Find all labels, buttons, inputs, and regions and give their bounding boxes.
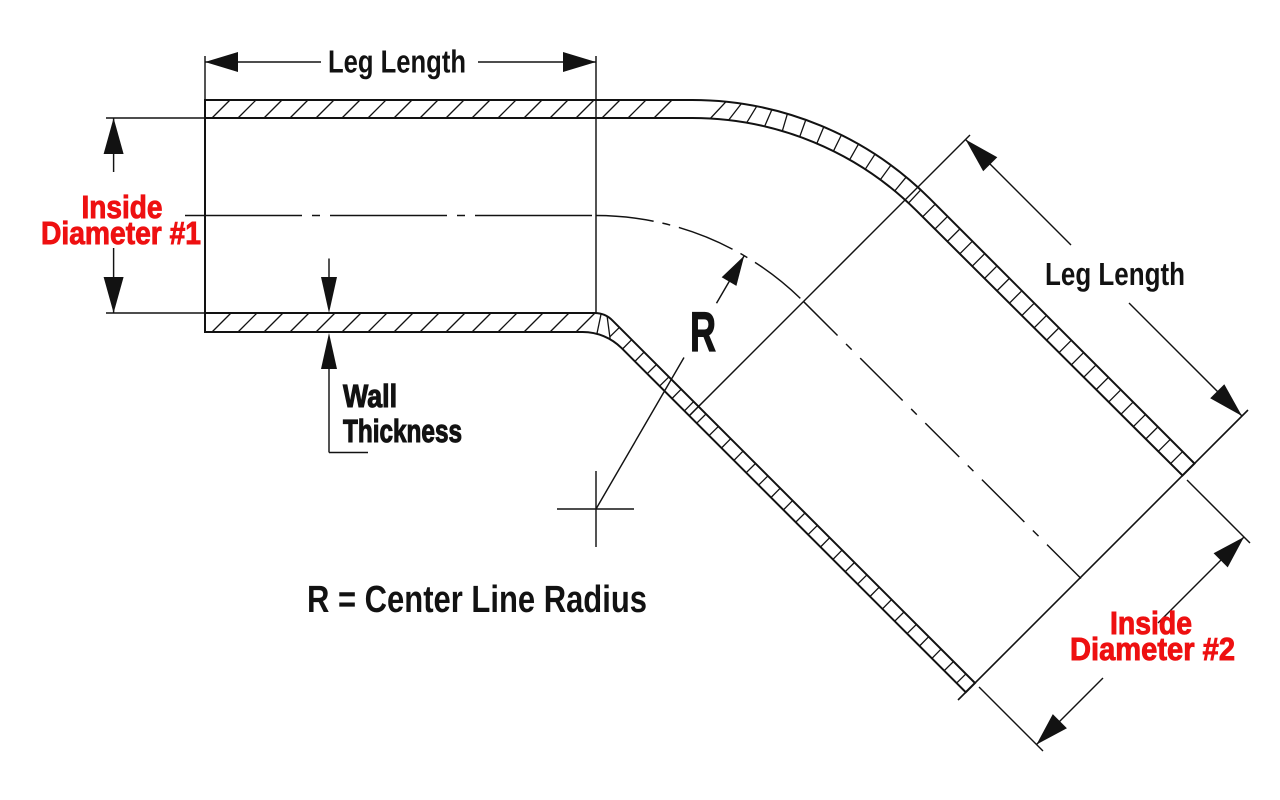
svg-text:Diameter #1: Diameter #1 [41,215,201,251]
svg-text:R: R [690,300,716,363]
svg-text:Wall: Wall [343,378,397,414]
svg-text:Leg Length: Leg Length [328,44,466,80]
svg-text:Leg Length: Leg Length [1045,256,1185,292]
svg-text:Thickness: Thickness [343,413,462,449]
svg-text:Diameter #2: Diameter #2 [1070,631,1235,667]
svg-text:R = Center Line Radius: R = Center Line Radius [307,579,647,621]
